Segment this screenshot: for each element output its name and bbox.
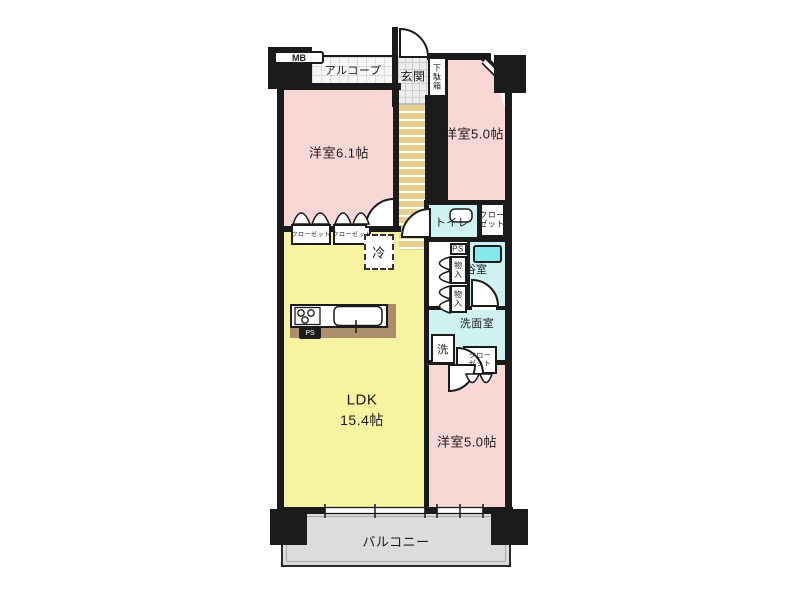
kitchen-counter-top xyxy=(290,304,388,328)
wall-ldk-right xyxy=(424,205,429,507)
closet-ne-label: クローゼット xyxy=(479,211,505,228)
bedroom-ne-label: 洋室5.0帖 xyxy=(444,124,504,143)
mb-label: MB xyxy=(292,53,306,63)
pillar-ne xyxy=(494,55,526,93)
storage-upper-label: 物入 xyxy=(453,261,464,279)
pillar-sw xyxy=(270,509,307,545)
kitchen-ps-box: PS xyxy=(299,327,321,339)
balcony-label: バルコニー xyxy=(362,532,429,551)
alcove-label: アルコープ xyxy=(325,62,382,78)
wall-bath-bottom-right xyxy=(496,306,505,310)
wall-outer-right xyxy=(505,78,512,510)
room-ldk xyxy=(282,231,425,507)
floor-plan-page: { "labels": { "mb": "MB", "alcove": "アルコ… xyxy=(0,0,800,600)
washer-label: 洗 xyxy=(437,341,449,357)
washroom-label: 洗面室 xyxy=(460,315,495,331)
wall-hall-right-band xyxy=(425,95,448,205)
wall-bedroom-se-top-right xyxy=(497,360,510,365)
bedroom-se-label: 洋室5.0帖 xyxy=(437,432,497,451)
bedroom-nw-label: 洋室6.1帖 xyxy=(309,143,369,162)
closet-nw-right-label: クローゼット xyxy=(332,230,371,239)
ldk-name-label: LDK xyxy=(347,392,378,409)
storage-lower-label: 物入 xyxy=(453,290,464,308)
hallway xyxy=(399,105,425,250)
shoe-cabinet-label: 下駄箱 xyxy=(432,64,443,91)
bath-label: 浴室 xyxy=(465,261,488,277)
wall-outer-left xyxy=(277,83,284,513)
wall-nw-hall xyxy=(393,83,399,231)
toilet-label: トイレ xyxy=(435,214,470,230)
mb-meter-box: MB xyxy=(274,51,324,64)
kitchen-ps-label: PS xyxy=(305,330,314,337)
entrance-label: 玄関 xyxy=(400,68,425,85)
front-door-arc xyxy=(400,29,428,57)
fridge-label: 冷 xyxy=(372,243,386,262)
closet-se-label: クローゼット xyxy=(468,352,492,367)
closet-nw-left-label: クローゼット xyxy=(291,230,330,239)
pillar-se xyxy=(491,509,528,545)
ldk-size-label: 15.4帖 xyxy=(340,410,384,430)
wall-outer-bottom xyxy=(277,507,513,514)
bifold-storage-upper xyxy=(440,257,451,283)
ps-label: PS xyxy=(452,245,464,254)
